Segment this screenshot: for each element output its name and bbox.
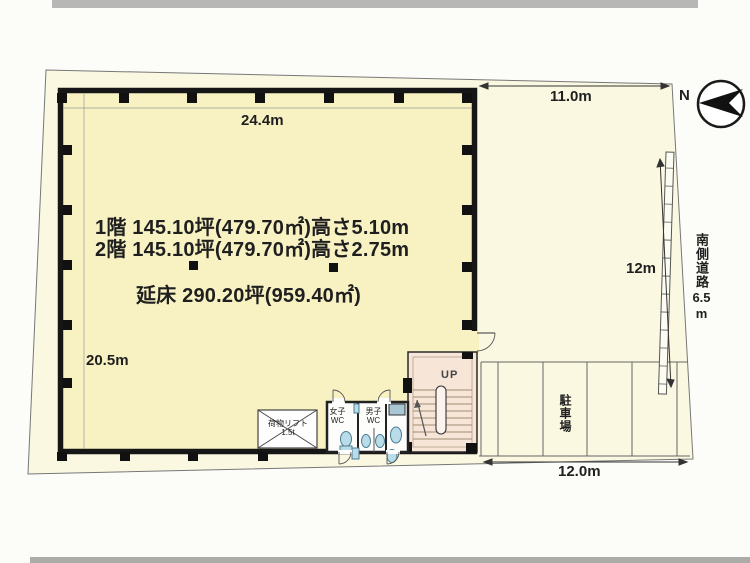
toilet-block [327, 390, 408, 464]
cargo-lift-label: 荷物リフト 1.5t [259, 419, 317, 437]
floor2-area-text: 2階 145.10坪(479.70㎡)高さ2.75m [95, 233, 409, 262]
cargo-lift-capacity: 1.5t [281, 428, 294, 437]
floor-plan-page: 1階 145.10坪(479.70㎡)高さ5.10m 2階 145.10坪(47… [0, 0, 750, 563]
stair-rail [436, 386, 446, 434]
photo-edge-top [52, 0, 698, 8]
dim-yard-bottom: 12.0m [558, 463, 601, 480]
dim-road-frontage: 12m [626, 260, 656, 277]
road-label: 南側道路 6.5 m [692, 233, 711, 321]
cargo-lift-name: 荷物リフト [268, 419, 308, 428]
north-label: N [679, 87, 690, 104]
stairs-up-label: UP [441, 369, 458, 381]
wc-sink-counter [389, 404, 405, 415]
wc-women-label: 女子WC [329, 407, 346, 425]
floor-plan-drawing [0, 0, 750, 563]
wc-men-label: 男子WC [365, 407, 382, 425]
dim-yard-top: 11.0m [550, 88, 592, 105]
parking-label: 駐車場 [557, 394, 574, 433]
road-width-unit: m [696, 306, 708, 321]
dim-building-depth: 20.5m [86, 352, 129, 369]
road-name: 南側道路 [692, 233, 711, 289]
dim-building-width: 24.4m [241, 112, 284, 129]
north-compass-icon [698, 81, 744, 127]
total-area-text: 延床 290.20坪(959.40㎡) [136, 279, 361, 308]
staircase [403, 352, 477, 453]
road-width-value: 6.5 [692, 290, 710, 305]
photo-edge-bottom [30, 557, 750, 563]
